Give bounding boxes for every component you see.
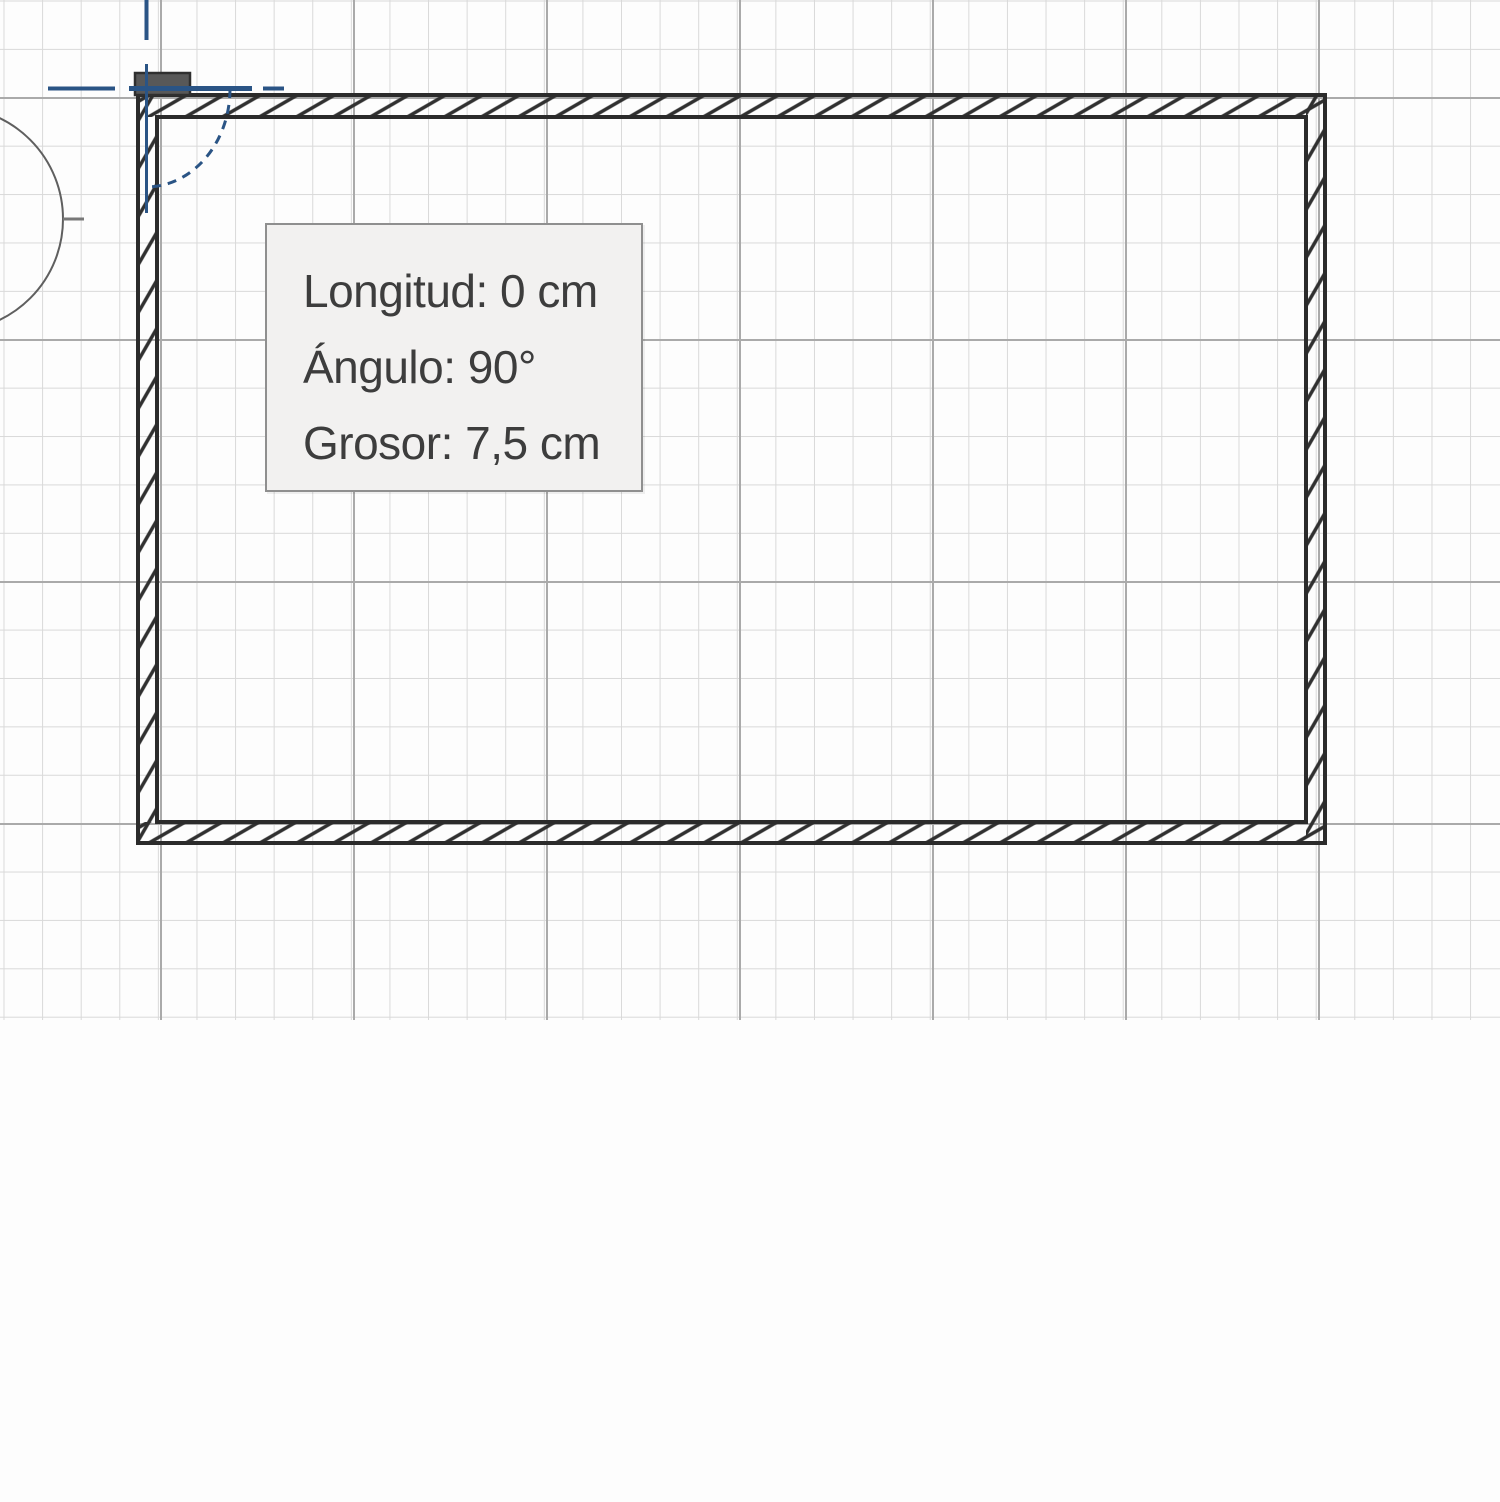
plan-drawing-layer [0, 0, 1500, 1022]
wall-right-hatch [1306, 95, 1325, 843]
plan-editor-canvas[interactable]: Longitud: 0 cm Ángulo: 90° Grosor: 7,5 c… [0, 0, 1500, 1502]
tooltip-length-line: Longitud: 0 cm [303, 253, 641, 329]
tooltip-angle-line: Ángulo: 90° [303, 329, 641, 405]
wall-start-handle[interactable] [135, 73, 190, 95]
compass-circle-icon[interactable] [0, 107, 84, 331]
tooltip-thickness-line: Grosor: 7,5 cm [303, 405, 641, 481]
wall-measurement-tooltip: Longitud: 0 cm Ángulo: 90° Grosor: 7,5 c… [265, 223, 643, 492]
wall-bottom-hatch [138, 822, 1325, 843]
wall-top-hatch [138, 95, 1325, 117]
